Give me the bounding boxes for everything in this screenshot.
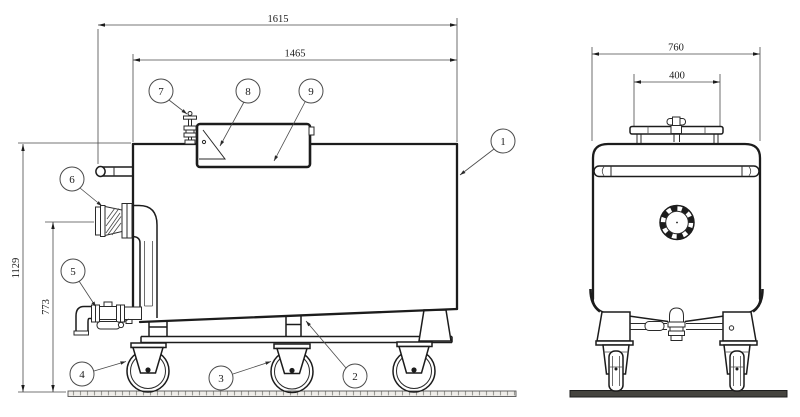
leg-bracket-right — [419, 310, 451, 341]
balloon-7-number: 7 — [158, 86, 164, 98]
dim-tank-length-value: 1465 — [285, 49, 306, 60]
balloon-5-number: 5 — [70, 266, 76, 278]
balloon-6-number: 6 — [69, 174, 75, 186]
balloon-3-number: 3 — [218, 373, 224, 385]
balloon-4-number: 4 — [79, 369, 85, 381]
engineering-drawing-canvas: 1615 1465 1129 773 1 2 — [0, 0, 800, 417]
balloon-2-number: 2 — [352, 371, 358, 383]
handle-bar — [594, 166, 759, 177]
balloon-1-number: 1 — [500, 136, 506, 148]
lid-hinge — [309, 127, 314, 135]
manhole-lid — [197, 124, 314, 167]
ground-plate — [570, 391, 787, 398]
balloon-8-number: 8 — [245, 86, 251, 98]
dim-outlet-height-value: 773 — [41, 299, 52, 315]
dim-manhole-width-value: 400 — [669, 71, 685, 82]
dim-overall-width-value: 760 — [668, 43, 684, 54]
valve-lever — [97, 322, 120, 330]
balloon-9-number: 9 — [308, 86, 314, 98]
drawing-page: 1615 1465 1129 773 1 2 — [0, 0, 800, 417]
dim-overall-length-value: 1615 — [268, 14, 289, 25]
valve-handle-grip — [645, 322, 664, 331]
dim-overall-height-value: 1129 — [11, 258, 22, 279]
